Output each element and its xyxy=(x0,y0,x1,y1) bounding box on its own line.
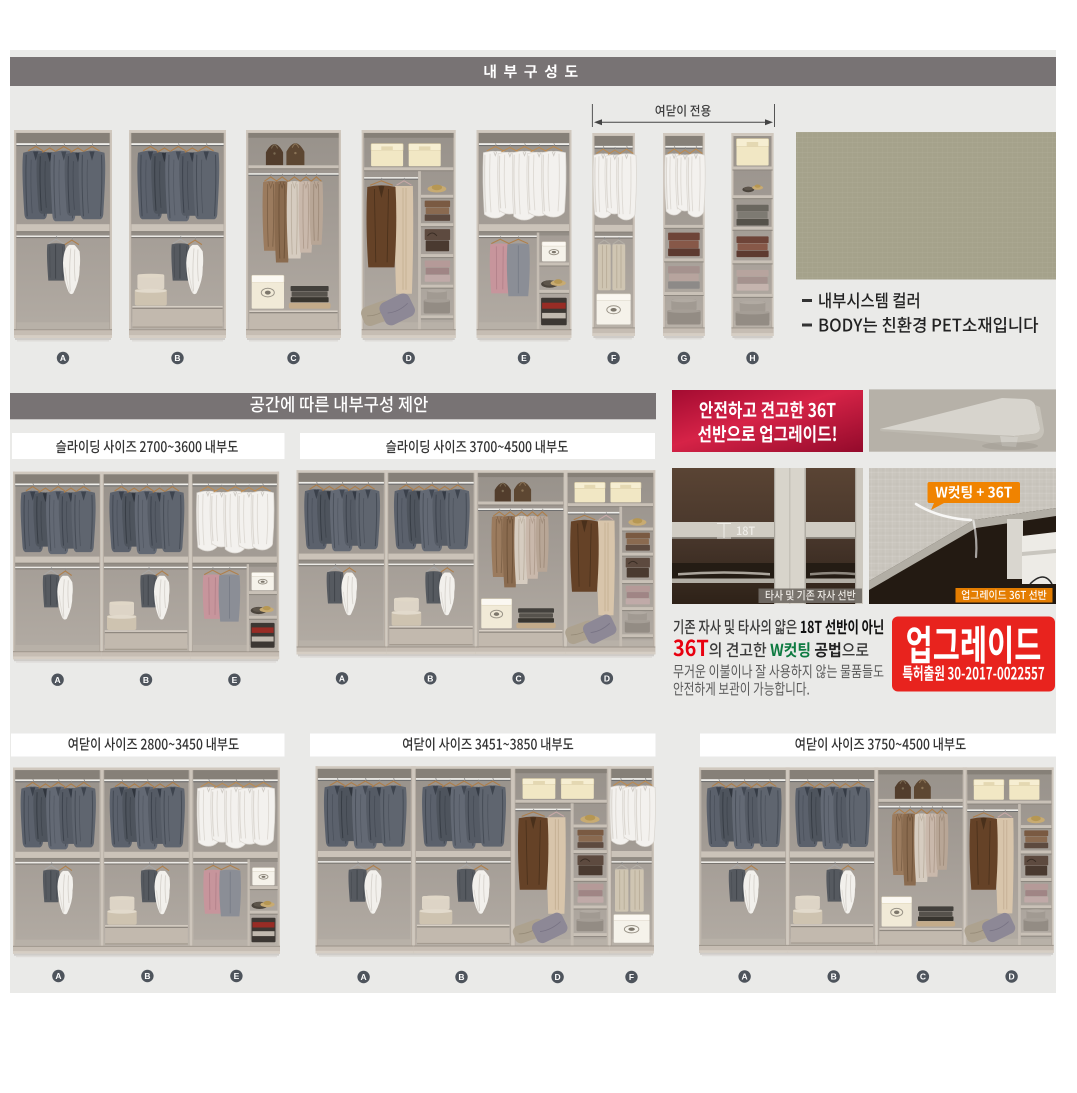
svg-text:B: B xyxy=(143,675,149,685)
svg-text:A: A xyxy=(339,673,345,683)
svg-text:B: B xyxy=(458,972,464,982)
svg-text:B: B xyxy=(831,972,837,982)
svg-text:D: D xyxy=(555,972,561,982)
svg-text:C: C xyxy=(516,673,522,683)
svg-text:D: D xyxy=(1009,972,1015,982)
svg-text:B: B xyxy=(174,353,180,363)
svg-text:A: A xyxy=(55,675,61,685)
svg-text:D: D xyxy=(406,353,412,363)
svg-text:E: E xyxy=(234,971,240,981)
svg-text:A: A xyxy=(55,971,61,981)
svg-text:A: A xyxy=(60,353,66,363)
svg-text:B: B xyxy=(144,971,150,981)
svg-text:A: A xyxy=(361,972,367,982)
svg-text:C: C xyxy=(290,353,296,363)
svg-text:E: E xyxy=(521,353,527,363)
svg-text:D: D xyxy=(604,673,610,683)
svg-text:A: A xyxy=(742,972,748,982)
svg-text:H: H xyxy=(749,353,755,363)
svg-text:G: G xyxy=(681,353,688,363)
svg-text:E: E xyxy=(232,675,238,685)
svg-text:B: B xyxy=(427,673,433,683)
svg-text:F: F xyxy=(611,353,616,363)
svg-text:F: F xyxy=(629,972,634,982)
svg-text:C: C xyxy=(920,972,926,982)
